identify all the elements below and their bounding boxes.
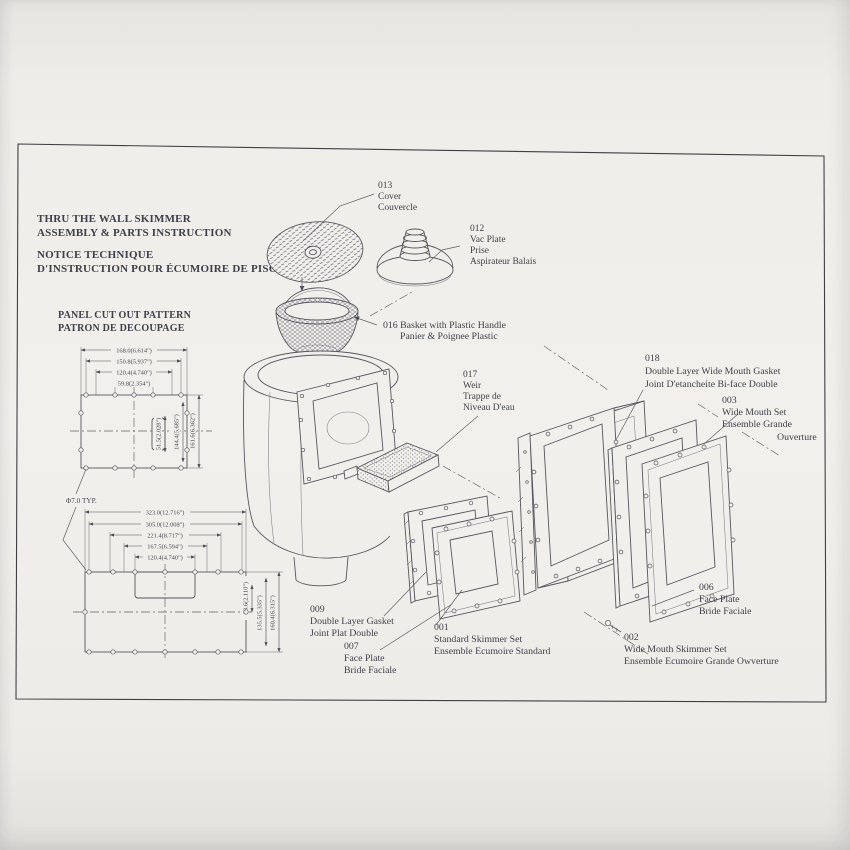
dim-p2-w3: 221.4(8.717") (147, 533, 183, 540)
std-set-name-fr: Ensemble Ecumoire Standard (434, 646, 551, 657)
weir-name-en: Weir (463, 381, 482, 391)
wm-set-name-fr2: Ouverture (777, 432, 817, 443)
vac-name-fr1: Prise (470, 246, 489, 256)
weir-name-fr1: Trappe de (463, 392, 501, 402)
scanned-instruction-sheet: THRU THE WALL SKIMMER ASSEMBLY & PARTS I… (0, 0, 850, 850)
vac-num: 012 (470, 224, 485, 234)
dim-p1-w4: 59.8(2.354") (118, 381, 150, 388)
cutout-pattern-1: 168.0(6.614") 150.8(5.937") 120.4(4.740"… (70, 346, 212, 479)
dim-p1-h1: 51.5(2.028") (156, 418, 163, 450)
label-std-set: 001 Standard Skimmer Set Ensemble Ecumoi… (434, 622, 551, 657)
label-fp007: 007 Face Plate Bride Faciale (344, 641, 397, 676)
centerline (742, 432, 780, 456)
wm-skimmer-num: 002 (624, 632, 639, 643)
screw-drawing (605, 620, 621, 632)
cover-name-fr: Couvercle (378, 203, 417, 213)
wm-set-name-fr1: Ensemble Grande (722, 419, 793, 430)
basket-drawing (276, 288, 358, 357)
dim-p2-w5: 120.4(4.740") (147, 555, 183, 562)
leader-vac (429, 246, 460, 262)
label-weir: 017 Weir Trappe de Niveau D'eau (463, 370, 515, 413)
leader-basket (354, 317, 377, 325)
std-set-name-en: Standard Skimmer Set (434, 634, 522, 645)
label-wm-gasket: 018 Double Layer Wide Mouth Gasket Joint… (645, 353, 781, 390)
dim-p2-h2: 135.5(5.335") (257, 595, 264, 631)
std-set-num: 001 (434, 622, 449, 633)
label-cover: 013 Cover Couvercle (378, 181, 417, 213)
fp006-name-fr: Bride Faciale (699, 606, 752, 617)
basket-name-fr: Panier & Poignee Plastic (400, 331, 498, 342)
centerline (544, 346, 608, 390)
fp007-num: 007 (344, 641, 359, 652)
weir-num: 017 (463, 370, 478, 380)
cover-name-en: Cover (378, 192, 402, 202)
leader-weir (436, 416, 478, 452)
centerline (698, 404, 718, 417)
label-vac-plate: 012 Vac Plate Prise Aspirateur Balais (470, 224, 537, 267)
pattern-title-fr: PATRON DE DECOUPAGE (58, 323, 185, 334)
pattern-title-en: PANEL CUT OUT PATTERN (58, 310, 192, 321)
centerline (443, 466, 500, 498)
dim-p2-w1: 323.0(12.716") (146, 510, 185, 517)
label-wm-skimmer: 002 Wide Mouth Skimmer Set Ensemble Ecum… (624, 632, 779, 667)
header-block: THRU THE WALL SKIMMER ASSEMBLY & PARTS I… (37, 213, 297, 275)
title-en-line2: ASSEMBLY & PARTS INSTRUCTION (37, 227, 232, 239)
dim-p1-w2: 150.8(5.937") (116, 359, 152, 366)
dim-p2-w4: 167.5(6.594") (147, 544, 183, 551)
dim-p2-h3: 160.4(6.315") (270, 595, 277, 631)
wm-skimmer-name-fr: Ensemble Ecumoire Grande Owverture (624, 656, 779, 667)
dim-p1-h2: 144.4(5.685") (174, 414, 181, 450)
wm-set-name-en: Wide Mouth Set (722, 407, 787, 418)
weir-name-fr2: Niveau D'eau (463, 403, 515, 413)
label-wm-set: 003 Wide Mouth Set Ensemble Grande Ouver… (722, 395, 817, 443)
vac-plate-drawing (377, 229, 453, 286)
gasket-name-fr: Joint Plat Double (310, 628, 379, 639)
dim-p2-h1: 53.6(2.110") (243, 582, 250, 614)
label-basket: 016 Basket with Plastic Handle Panier & … (383, 320, 507, 342)
gasket-name-en: Double Layer Gasket (310, 616, 394, 627)
vac-name-en: Vac Plate (470, 235, 506, 245)
hole-size-note: Φ7.0 TYP. (63, 469, 97, 570)
vac-name-fr2: Aspirateur Balais (470, 257, 537, 267)
dim-p2-w2: 305.0(12.008") (146, 522, 185, 529)
fp007-name-fr: Bride Faciale (344, 665, 397, 676)
title-fr-line1: NOTICE TECHNIQUE (37, 249, 153, 261)
wm-gasket-name-fr: Joint D'etancheite Bi-face Double (645, 379, 778, 390)
pattern-heading: PANEL CUT OUT PATTERN PATRON DE DECOUPAG… (58, 310, 192, 334)
fp006-num: 006 (699, 582, 714, 593)
wm-gasket-num: 018 (645, 353, 660, 364)
cutout-pattern-2: 323.0(12.716") 305.0(12.008") 221.4(8.71… (73, 508, 283, 661)
hole-note-label: Φ7.0 TYP. (66, 497, 97, 505)
gasket-num: 009 (310, 604, 325, 615)
fp006-name-en: Face Plate (699, 594, 740, 605)
wm-set-num: 003 (722, 395, 737, 406)
title-fr-line2: D'INSTRUCTION POUR ÉCUMOIRE DE PISCINE (37, 263, 297, 275)
std-faceplate-drawing (432, 511, 520, 619)
wm-skimmer-name-en: Wide Mouth Skimmer Set (624, 644, 727, 655)
basket-name-en: 016 Basket with Plastic Handle (383, 320, 507, 331)
diagram-canvas: THRU THE WALL SKIMMER ASSEMBLY & PARTS I… (0, 0, 850, 850)
fp007-name-en: Face Plate (344, 653, 385, 664)
cover-drawing (264, 217, 366, 287)
title-en-line1: THRU THE WALL SKIMMER (37, 213, 192, 225)
dim-p1-h3: 161.6(6.362") (190, 413, 197, 449)
cover-num: 013 (378, 181, 393, 191)
dim-p1-w1: 168.0(6.614") (116, 348, 152, 355)
dim-p1-w3: 120.4(4.740") (116, 370, 152, 377)
label-gasket: 009 Double Layer Gasket Joint Plat Doubl… (310, 604, 394, 639)
centerline (370, 292, 412, 316)
wm-gasket-name-en: Double Layer Wide Mouth Gasket (645, 366, 781, 377)
